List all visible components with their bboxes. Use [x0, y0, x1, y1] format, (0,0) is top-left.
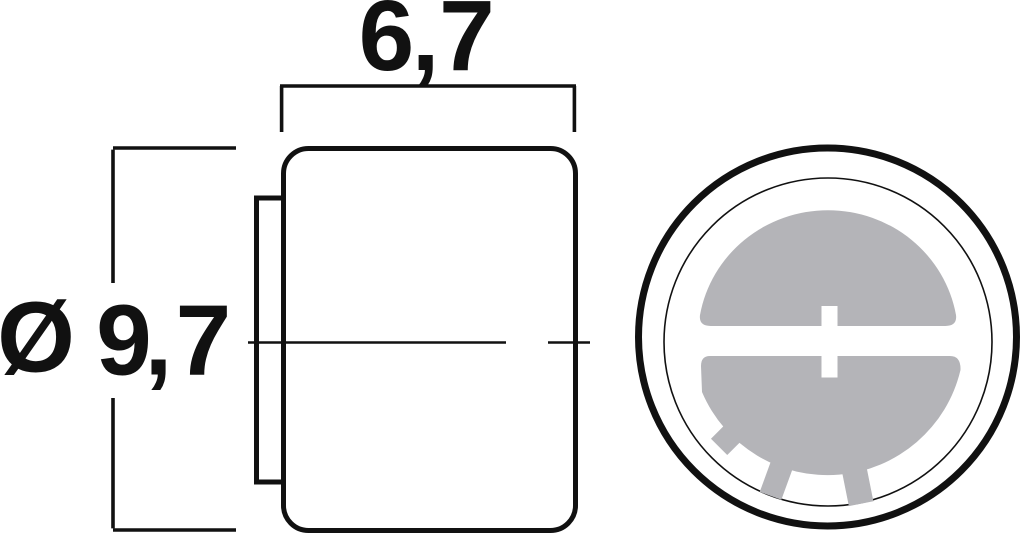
svg-text:9: 9 [96, 285, 152, 397]
svg-text:Ø: Ø [0, 282, 75, 394]
svg-text:7: 7 [439, 0, 495, 92]
svg-text:6: 6 [359, 0, 415, 92]
svg-text:,: , [145, 285, 173, 397]
svg-text:,: , [412, 0, 440, 92]
svg-text:7: 7 [176, 285, 232, 397]
